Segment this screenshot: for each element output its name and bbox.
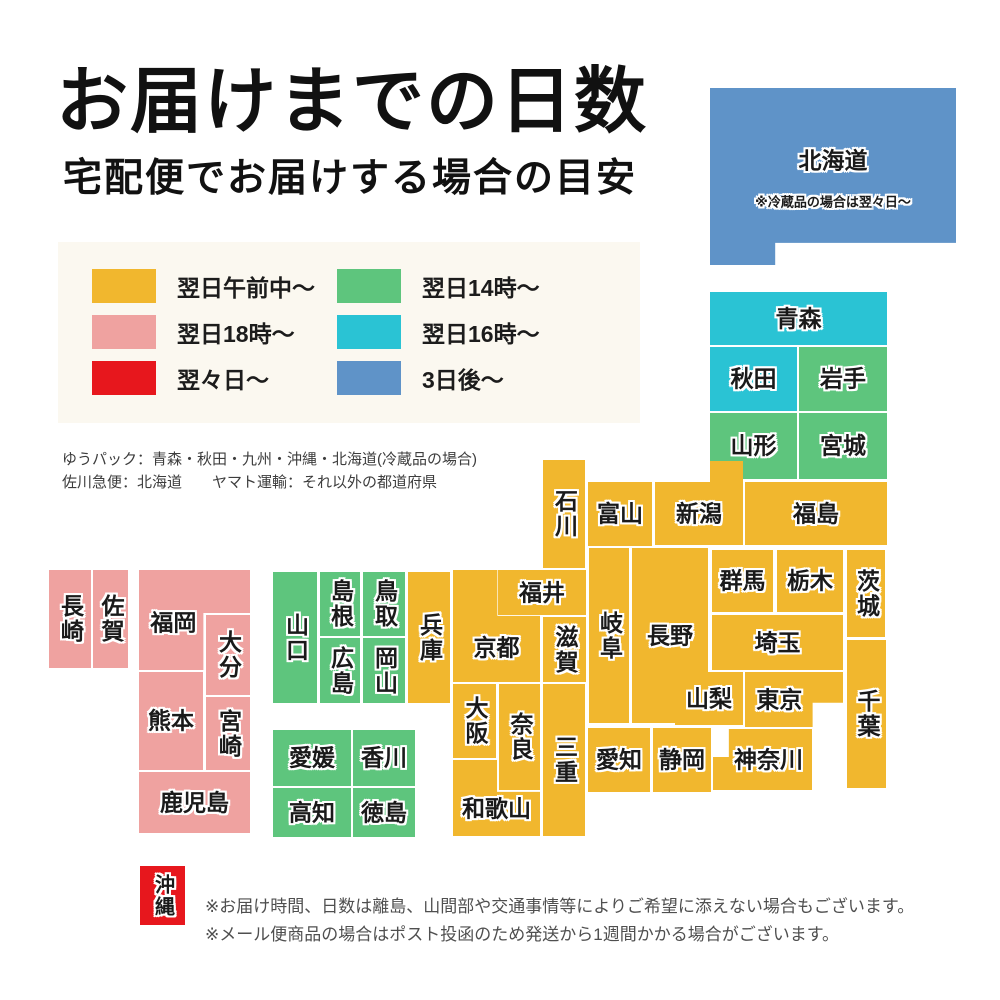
prefecture-kagoshima: 鹿児島 [139,772,250,833]
prefecture-label-shimane: 島根 [329,579,352,629]
prefecture-tochigi: 栃木 [777,550,843,612]
prefecture-label-kumamoto: 熊本 [148,710,194,733]
prefecture-label-tokyo: 東京 [756,688,802,711]
prefecture-niigata: 新潟 [655,461,743,545]
prefecture-hyogo: 兵庫 [408,572,450,703]
prefecture-fukushima: 福島 [745,482,887,545]
prefecture-label-saga: 佐賀 [99,594,122,644]
prefecture-aichi: 愛知 [588,728,650,792]
prefecture-shiga: 滋賀 [543,617,586,682]
prefecture-label-kyoto: 京都 [474,637,520,660]
prefecture-label-chiba: 千葉 [855,689,878,739]
footer-note-line1: ※お届け時間、日数は離島、山間部や交通事情等によりご希望に添えない場合もございま… [205,893,914,921]
prefecture-label-kochi: 高知 [289,801,335,824]
prefecture-ehime: 愛媛 [273,730,351,786]
prefecture-label-tokushima: 徳島 [361,801,407,824]
prefecture-label-ehime: 愛媛 [289,747,335,770]
prefecture-okayama: 岡山 [363,638,405,703]
prefecture-label-okayama: 岡山 [373,646,396,696]
prefecture-label-fukushima: 福島 [793,502,839,525]
prefecture-label-ibaraki: 茨城 [855,569,878,619]
prefecture-saga: 佐賀 [93,570,128,668]
prefecture-label-toyama: 富山 [597,503,643,526]
prefecture-gunma: 群馬 [712,550,773,612]
prefecture-osaka: 大阪 [453,684,496,758]
prefecture-label-miyazaki: 宮崎 [217,709,240,759]
prefecture-label-niigata: 新潟 [676,502,722,525]
prefecture-iwate: 岩手 [799,347,887,411]
prefecture-label-osaka: 大阪 [463,696,486,746]
prefecture-label-saitama: 埼玉 [755,631,801,654]
prefecture-oita: 大分 [206,615,250,695]
prefecture-akita: 秋田 [710,347,797,411]
prefecture-fukui: 福井 [498,570,586,615]
prefecture-label-akita: 秋田 [731,368,777,391]
prefecture-label-fukui: 福井 [519,581,565,604]
prefecture-chiba: 千葉 [847,640,886,788]
prefecture-label-iwate: 岩手 [820,368,866,391]
footer-note-line2: ※メール便商品の場合はポスト投函のため発送から1週間かかる場合がございます。 [205,921,914,949]
prefecture-label-shiga: 滋賀 [553,625,576,675]
prefecture-label-ishikawa: 石川 [553,489,576,539]
prefecture-label-miyagi: 宮城 [820,435,866,458]
prefecture-hiroshima: 広島 [320,638,360,703]
prefecture-yamanashi: 山梨 [675,672,743,725]
prefecture-label-tottori: 鳥取 [373,579,396,629]
prefecture-yamaguchi: 山口 [273,572,317,703]
prefecture-kanagawa: 神奈川 [713,729,812,790]
prefecture-aomori: 青森 [710,292,887,345]
prefecture-label-yamagata: 山形 [731,435,777,458]
prefecture-tokushima: 徳島 [353,788,415,837]
prefecture-mie: 三重 [543,684,585,836]
prefecture-label-wakayama: 和歌山 [462,797,531,820]
footer-notes: ※お届け時間、日数は離島、山間部や交通事情等によりご希望に添えない場合もございま… [205,893,914,949]
prefecture-shizuoka: 静岡 [653,728,711,792]
prefecture-label-aichi: 愛知 [596,749,642,772]
prefecture-miyazaki: 宮崎 [206,697,250,770]
prefecture-tokyo: 東京 [745,672,843,727]
prefecture-label-hokkaido: 北海道 [799,149,868,172]
prefecture-label-nara: 奈良 [508,712,531,762]
prefecture-label-fukuoka: 福岡 [150,612,196,635]
prefecture-label-hiroshima: 広島 [329,646,352,696]
prefecture-nara: 奈良 [499,684,540,790]
prefecture-kagawa: 香川 [353,730,415,786]
prefecture-label-hyogo: 兵庫 [418,613,441,663]
prefecture-tottori: 鳥取 [363,572,405,636]
prefecture-label-shizuoka: 静岡 [659,749,705,772]
prefecture-hokkaido: 北海道※冷蔵品の場合は翌々日〜 [710,88,956,265]
prefecture-toyama: 富山 [588,482,652,546]
prefecture-saitama: 埼玉 [712,615,843,670]
prefecture-ishikawa: 石川 [543,460,585,568]
prefecture-okinawa: 沖縄 [140,866,185,925]
prefecture-label-kagawa: 香川 [361,747,407,770]
prefecture-ibaraki: 茨城 [847,550,885,637]
prefecture-note-hokkaido: ※冷蔵品の場合は翌々日〜 [755,192,911,211]
prefecture-label-nagasaki: 長崎 [59,594,82,644]
prefecture-miyagi: 宮城 [799,413,887,479]
prefecture-shimane: 島根 [320,572,360,636]
prefecture-label-kanagawa: 神奈川 [734,748,803,771]
prefecture-label-kagoshima: 鹿児島 [160,791,229,814]
prefecture-label-oita: 大分 [217,630,240,680]
prefecture-label-nagano: 長野 [647,624,693,647]
prefecture-label-tochigi: 栃木 [787,570,833,593]
prefecture-label-mie: 三重 [553,735,576,785]
prefecture-label-yamaguchi: 山口 [284,613,307,663]
prefecture-label-gunma: 群馬 [720,570,766,593]
prefecture-label-gifu: 岐阜 [598,611,621,661]
prefecture-kumamoto: 熊本 [139,672,203,770]
prefecture-label-okinawa: 沖縄 [153,874,173,918]
japan-delivery-map: 北海道※冷蔵品の場合は翌々日〜青森秋田岩手山形宮城石川富山新潟福島福井京都滋賀兵… [0,0,1000,1000]
prefecture-label-yamanashi: 山梨 [686,687,732,710]
prefecture-label-aomori: 青森 [776,307,822,330]
prefecture-kochi: 高知 [273,788,351,837]
prefecture-gifu: 岐阜 [589,548,629,723]
prefecture-nagasaki: 長崎 [49,570,91,668]
